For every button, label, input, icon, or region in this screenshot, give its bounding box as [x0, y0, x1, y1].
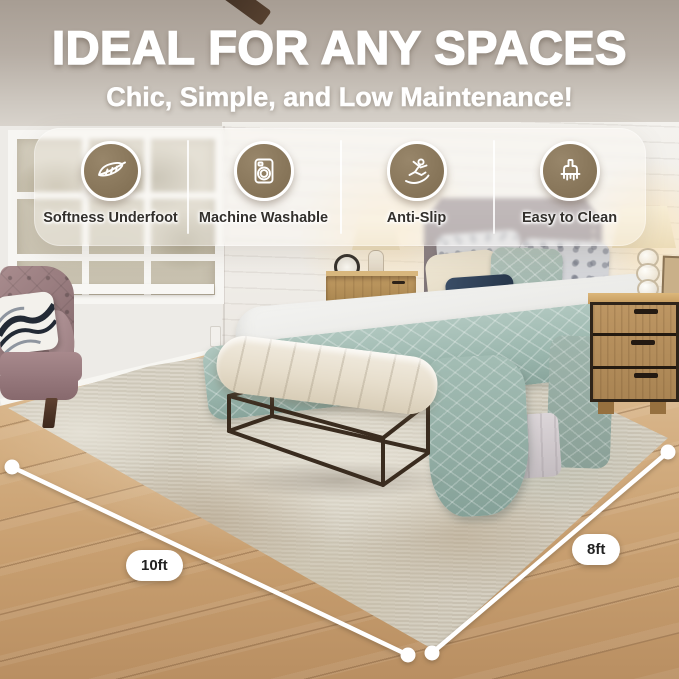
drawer-handle: [392, 281, 405, 284]
feather-icon: [95, 155, 127, 187]
rug-depth-label: 8ft: [572, 534, 620, 565]
drawer-handle: [634, 309, 658, 314]
feature-easyclean: Easy to Clean: [493, 128, 646, 246]
product-lifestyle-image: 10ft 8ft IDEAL FOR ANY SPACES Chic, Simp…: [0, 0, 679, 679]
feature-softness: Softness Underfoot: [34, 128, 187, 246]
feature-badge: [234, 141, 294, 201]
accent-pillow: [0, 291, 59, 356]
feature-label: Softness Underfoot: [43, 210, 178, 226]
feature-label: Anti-Slip: [387, 210, 447, 226]
headline-subtitle: Chic, Simple, and Low Maintenance!: [0, 82, 679, 113]
dresser: [590, 302, 679, 402]
dresser-leg: [650, 402, 666, 414]
feature-label: Easy to Clean: [522, 210, 617, 226]
bench-shadow: [230, 460, 450, 500]
panel-divider: [493, 140, 495, 234]
cleaning-brush-icon: [554, 155, 586, 187]
feature-badge: [81, 141, 141, 201]
feature-label: Machine Washable: [199, 210, 328, 226]
dresser-leg: [598, 402, 614, 414]
headline-title: IDEAL FOR ANY SPACES: [0, 20, 679, 75]
drawer-gap: [593, 366, 676, 369]
sage-quilt-drape: [424, 353, 532, 518]
panel-divider: [340, 140, 342, 234]
drawer-handle: [631, 340, 655, 345]
feature-antislip: Anti-Slip: [340, 128, 493, 246]
pillow-swirl-pattern: [0, 291, 59, 356]
anti-slip-icon: [401, 155, 433, 187]
rug-width-label: 10ft: [126, 550, 183, 581]
wall-outlet: [210, 326, 221, 347]
feature-badge: [540, 141, 600, 201]
drawer-handle: [634, 373, 658, 378]
drawer-gap: [593, 333, 676, 336]
feature-washable: Machine Washable: [187, 128, 340, 246]
armchair-skirt: [0, 376, 78, 400]
feature-badge: [387, 141, 447, 201]
panel-divider: [187, 140, 189, 234]
washing-machine-icon: [248, 155, 280, 187]
window-mullion: [17, 254, 215, 261]
